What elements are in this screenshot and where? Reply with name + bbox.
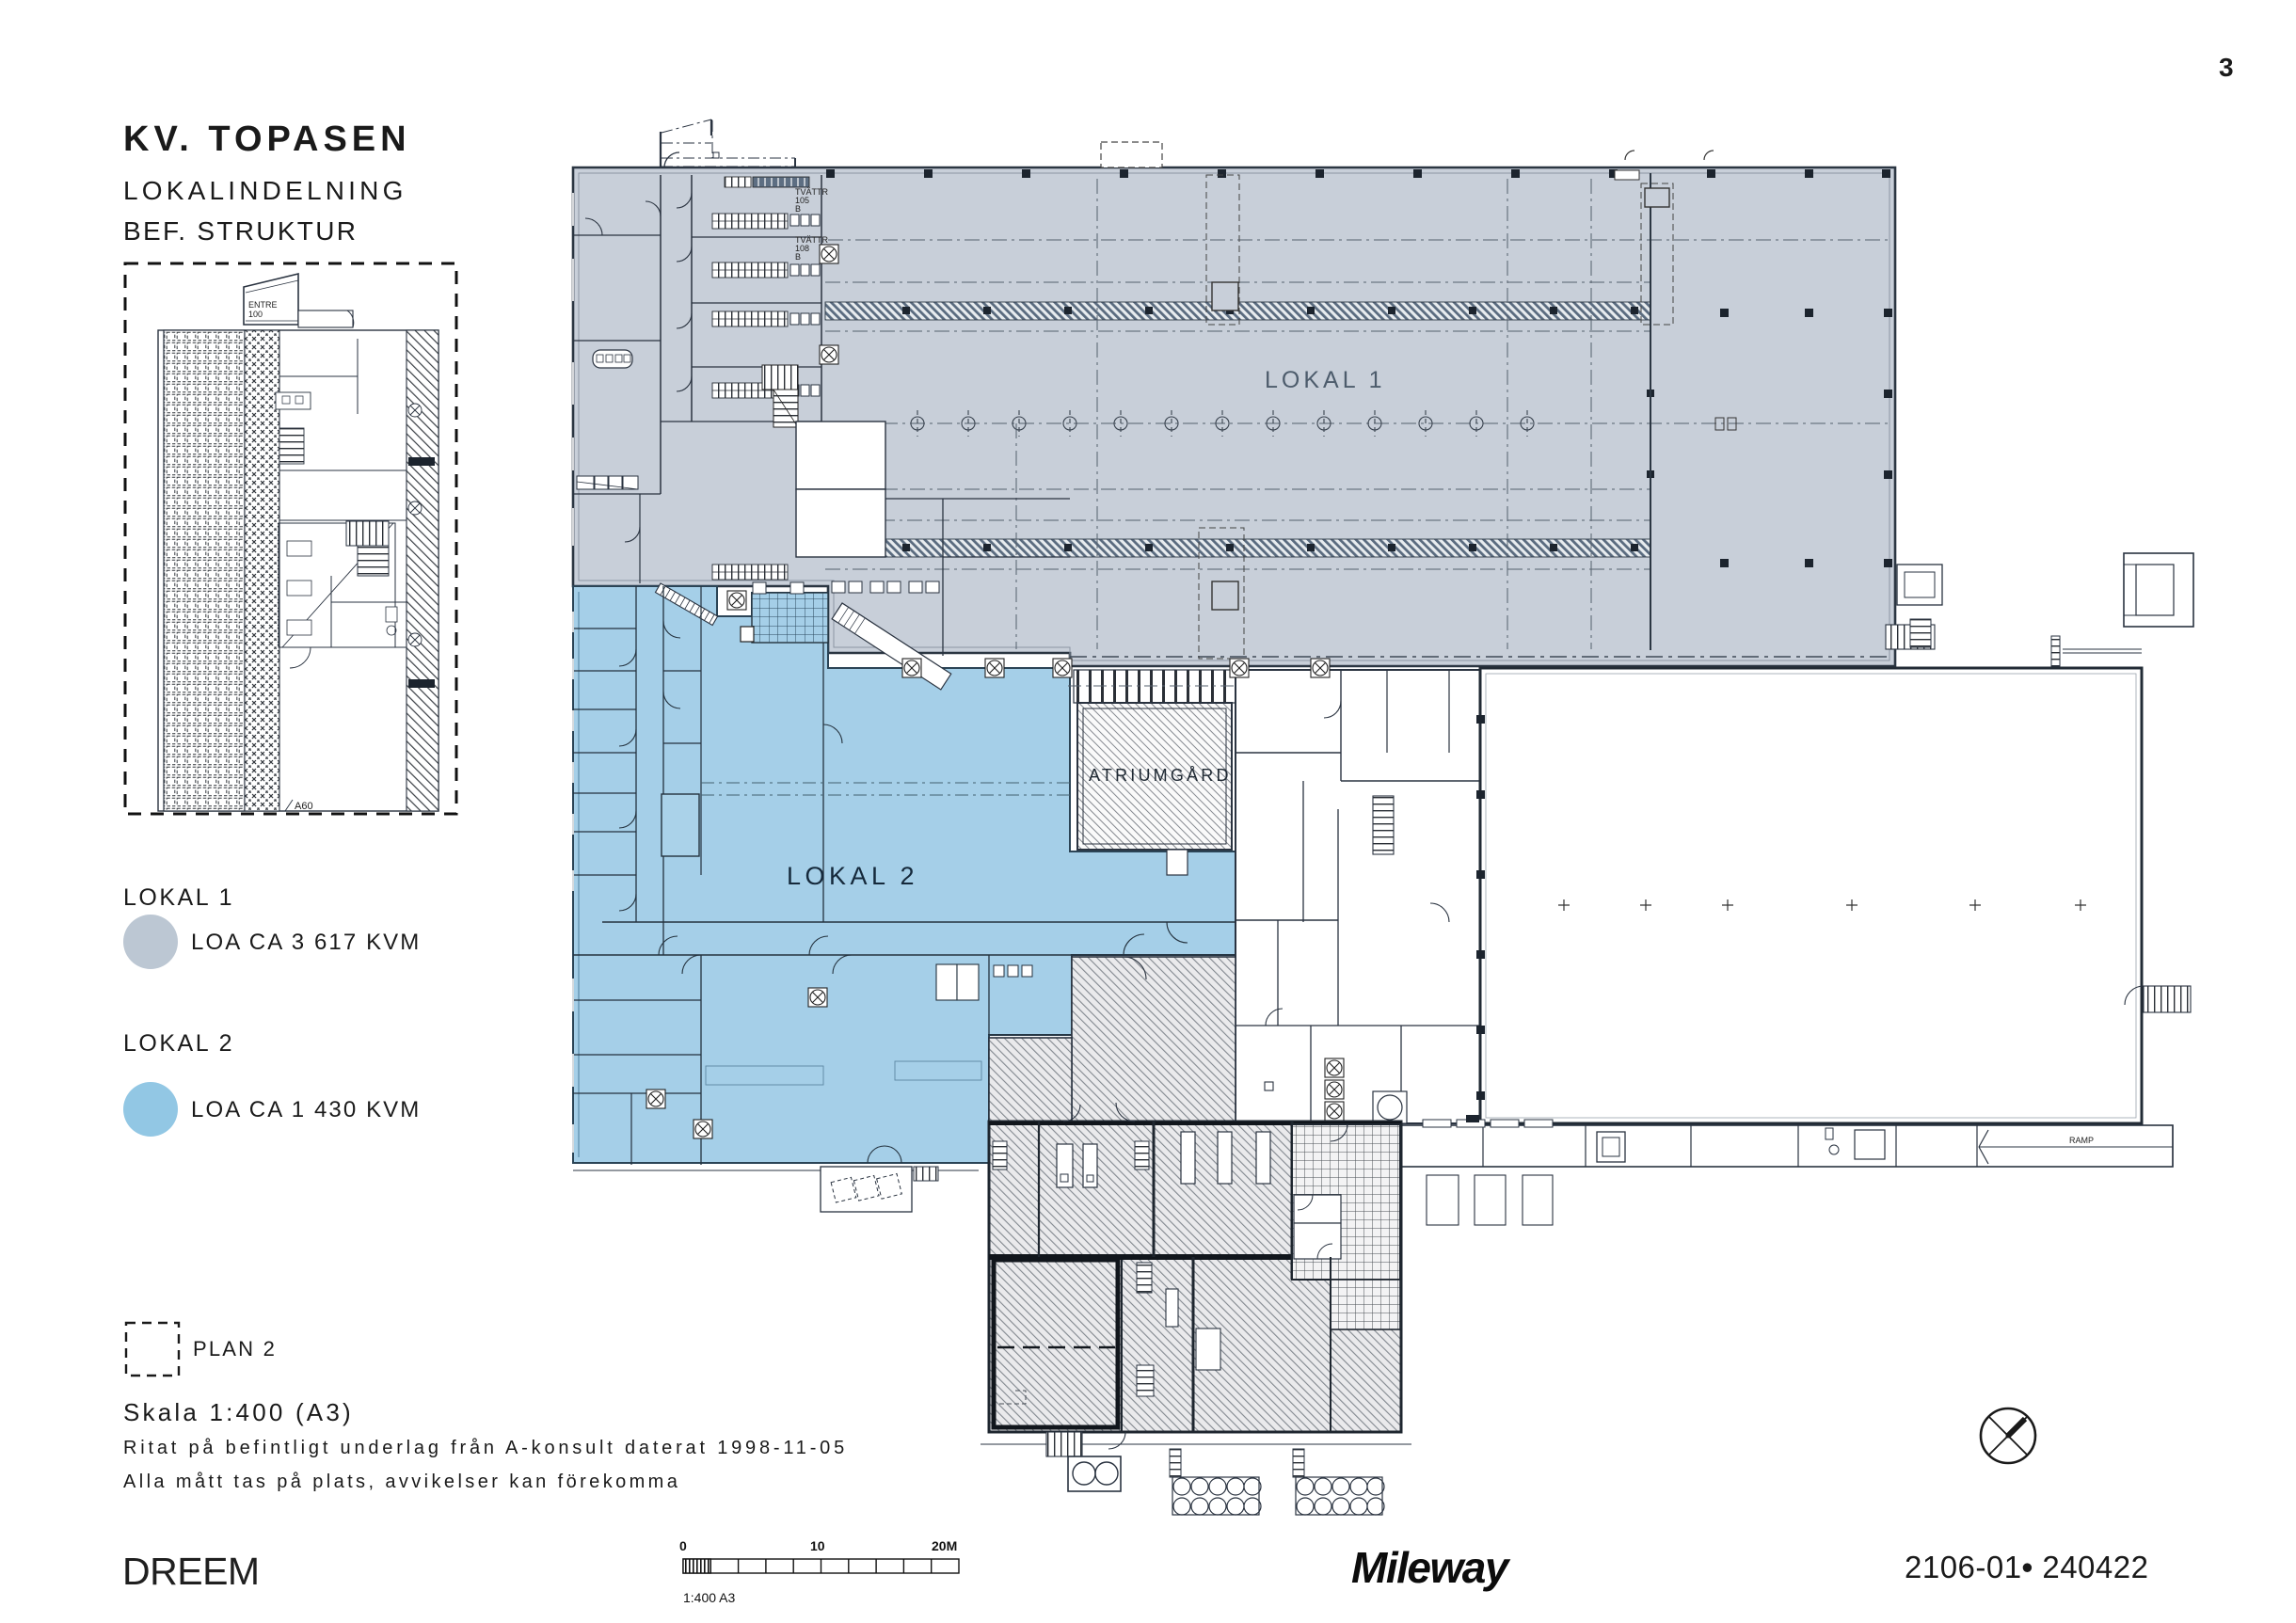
svg-text:Ritat på befintligt underlag f: Ritat på befintligt underlag från A-kons… (123, 1438, 848, 1458)
svg-text:Mileway: Mileway (1351, 1543, 1511, 1592)
svg-text:Skala 1:400 (A3): Skala 1:400 (A3) (123, 1398, 354, 1426)
svg-text:3: 3 (2219, 53, 2234, 82)
svg-text:ATRIUMGÅRD: ATRIUMGÅRD (1089, 766, 1232, 785)
svg-text:LOKAL 2: LOKAL 2 (787, 862, 918, 890)
svg-text:ENTRE: ENTRE (248, 300, 278, 310)
svg-text:0: 0 (679, 1538, 687, 1553)
svg-text:DREEM: DREEM (122, 1550, 260, 1593)
svg-text:B: B (795, 204, 801, 214)
svg-text:LOKAL 2: LOKAL 2 (123, 1030, 234, 1057)
svg-text:LOKALINDELNING: LOKALINDELNING (123, 176, 407, 205)
svg-text:1:400 A3: 1:400 A3 (683, 1590, 735, 1605)
svg-text:LOA CA 3 617 KVM: LOA CA 3 617 KVM (191, 930, 421, 955)
svg-text:RAMP: RAMP (2069, 1136, 2094, 1145)
svg-text:B: B (795, 252, 801, 262)
svg-text:20M: 20M (932, 1538, 957, 1553)
svg-text:A60: A60 (295, 801, 313, 812)
svg-text:KV. TOPASEN: KV. TOPASEN (123, 119, 411, 159)
svg-text:BEF. STRUKTUR: BEF. STRUKTUR (123, 216, 358, 246)
svg-text:LOKAL 1: LOKAL 1 (123, 884, 234, 911)
svg-text:LOA CA 1 430 KVM: LOA CA 1 430 KVM (191, 1097, 421, 1122)
svg-text:10: 10 (810, 1538, 825, 1553)
svg-text:100: 100 (248, 310, 263, 319)
svg-text:PLAN 2: PLAN 2 (193, 1337, 277, 1360)
svg-text:2106-01• 240422: 2106-01• 240422 (1905, 1550, 2148, 1584)
svg-text:LOKAL 1: LOKAL 1 (1265, 367, 1386, 393)
svg-text:Alla mått tas på plats, avvike: Alla mått tas på plats, avvikelser kan f… (123, 1472, 680, 1492)
